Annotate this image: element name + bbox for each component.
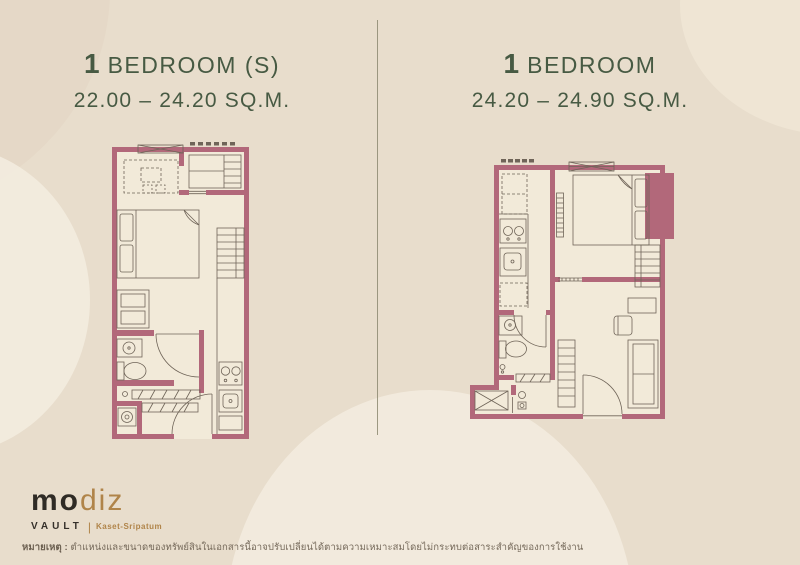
plan-heading-right: 1BEDROOM 24.20 – 24.90 SQ.M. <box>455 48 705 113</box>
plan-heading-left: 1BEDROOM (S) 22.00 – 24.20 SQ.M. <box>57 48 307 113</box>
brand-subline: VAULT | Kaset-Sripatum <box>31 521 162 533</box>
footnote-prefix: หมายเหตุ : <box>22 542 68 553</box>
plan-number-left: 1 <box>84 48 101 79</box>
plan-area-right: 24.20 – 24.90 SQ.M. <box>455 89 705 113</box>
brand-logo: modiz VAULT | Kaset-Sripatum <box>31 486 162 533</box>
brand-subname: VAULT <box>31 522 83 532</box>
footnote-text: ตำแหน่งและขนาดของทรัพย์สินในเอกสารนี้อาจ… <box>68 542 584 553</box>
brochure-page: { "left_plan": { "number": "1", "label":… <box>0 0 800 565</box>
footnote: หมายเหตุ : ตำแหน่งและขนาดของทรัพย์สินในเ… <box>22 540 583 555</box>
brand-wordmark: modiz <box>31 486 162 516</box>
divider-line <box>377 20 378 435</box>
plan-area-left: 22.00 – 24.20 SQ.M. <box>57 89 307 113</box>
floorplan-1-bedroom <box>470 157 674 419</box>
brand-suffix: diz <box>80 484 124 517</box>
plan-label-right: BEDROOM <box>527 52 656 78</box>
brand-prefix: mo <box>31 484 80 517</box>
brand-location: Kaset-Sripatum <box>96 523 162 531</box>
plan-title-left: 1BEDROOM (S) <box>57 48 307 80</box>
brand-separator: | <box>88 521 91 533</box>
plan-number-right: 1 <box>504 48 521 79</box>
plan-title-right: 1BEDROOM <box>455 48 705 80</box>
plan-label-left: BEDROOM (S) <box>108 52 280 78</box>
floorplan-1-bedroom-s <box>112 141 252 439</box>
